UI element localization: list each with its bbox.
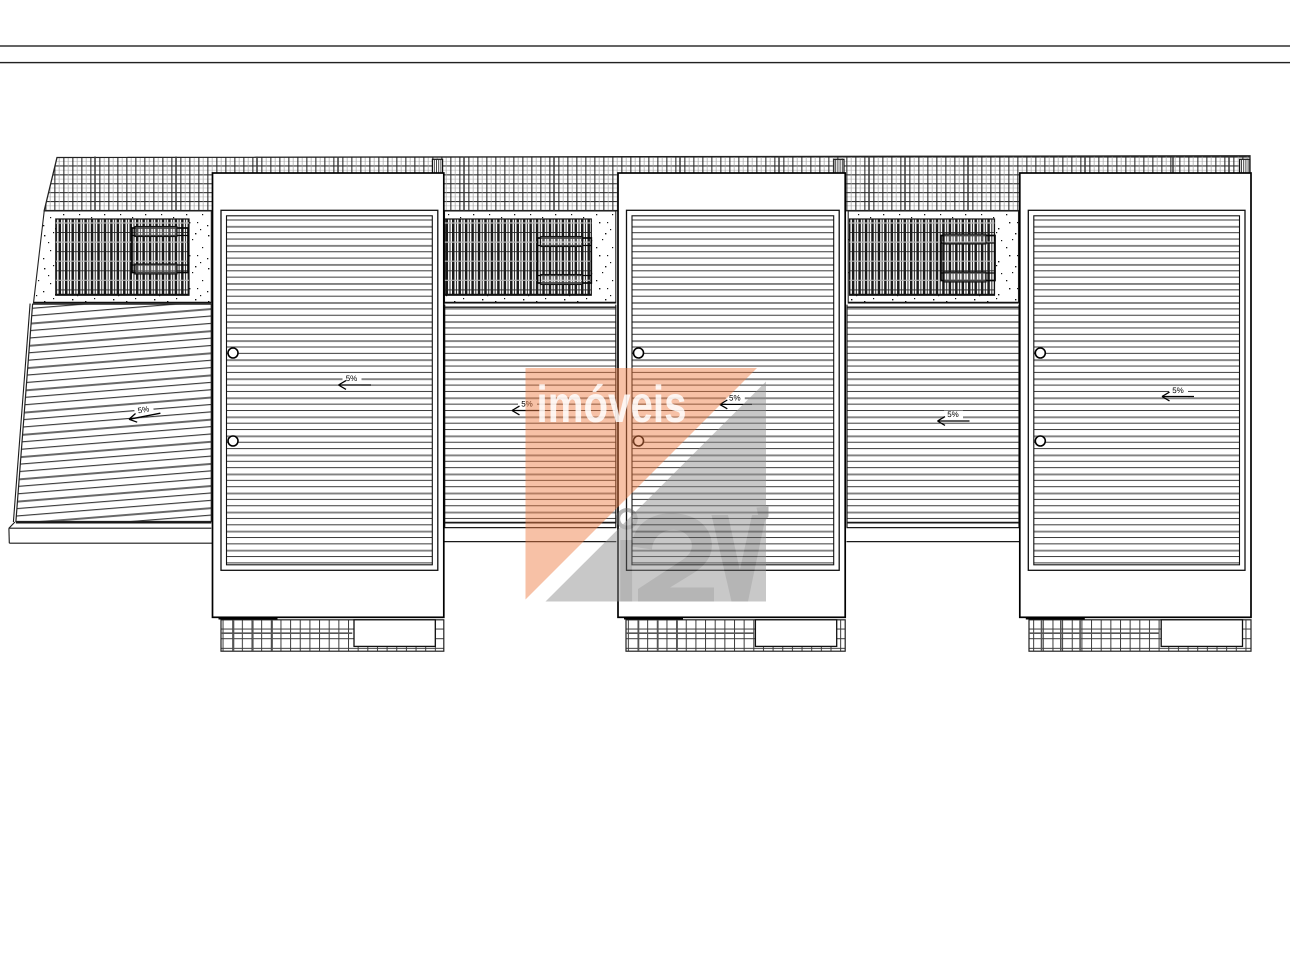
svg-text:5%: 5%	[346, 374, 358, 383]
svg-text:5%: 5%	[947, 410, 959, 419]
svg-text:imóveis: imóveis	[537, 376, 687, 434]
svg-text:5%: 5%	[1172, 386, 1184, 395]
svg-text:5%: 5%	[729, 393, 741, 402]
